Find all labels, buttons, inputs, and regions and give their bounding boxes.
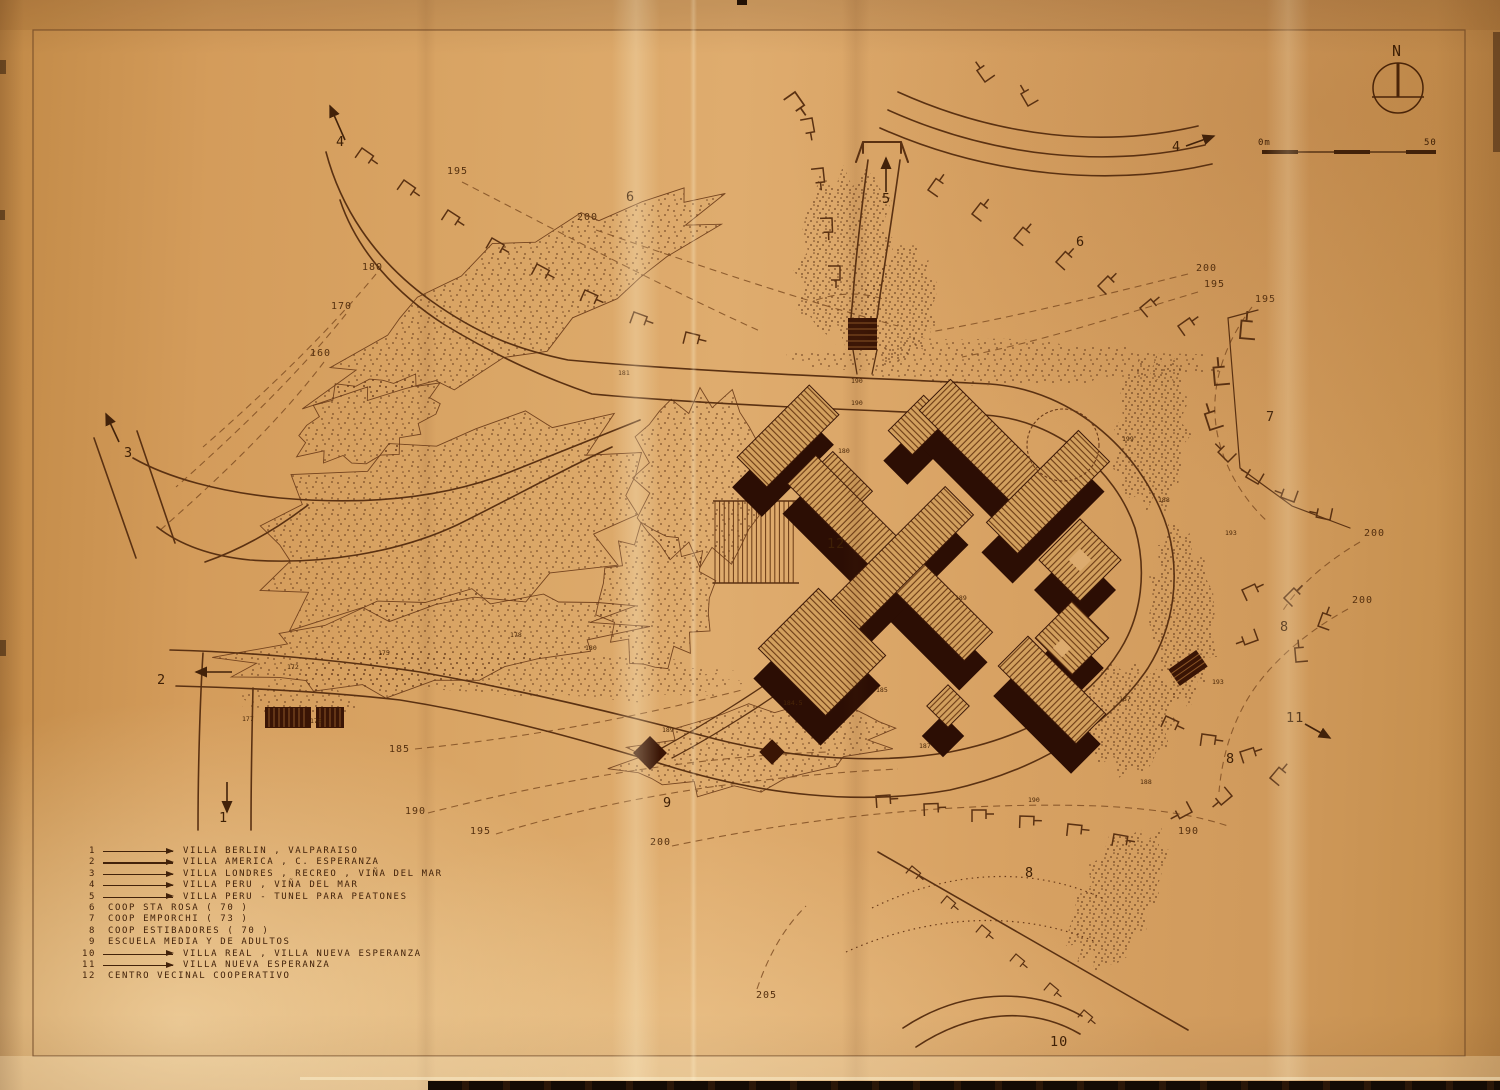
house-footprint	[976, 925, 996, 944]
spot-elevation-label: 177	[242, 715, 254, 723]
legend-item: 12CENTRO VECINAL COOPERATIVO	[70, 971, 443, 982]
legend-item: 5VILLA PERU - TUNEL PARA PEATONES	[70, 892, 443, 903]
vegetation-patch	[302, 188, 725, 409]
spot-elevation-label: 178	[310, 717, 322, 725]
contour-label: 170	[331, 301, 352, 312]
spot-elevation-label: 175	[378, 649, 390, 657]
house-footprint	[1240, 311, 1257, 340]
legend-item: 6COOP STA ROSA ( 70 )	[70, 903, 443, 914]
legend-item: 9ESCUELA MEDIA Y DE ADULTOS	[70, 937, 443, 948]
contour-label: 190	[1178, 826, 1199, 837]
legend-item-label: VILLA NUEVA ESPERANZA	[183, 960, 330, 971]
legend-item-label: COOP EMPORCHI ( 73 )	[108, 914, 248, 925]
map-area-label: 5	[882, 191, 891, 207]
scale-bar: 0m 50	[1258, 138, 1437, 154]
map-area-label: 4	[336, 134, 345, 150]
legend-item-number: 11	[70, 960, 96, 971]
map-area-label: 11	[1286, 710, 1304, 726]
legend-item-number: 7	[70, 914, 96, 925]
spot-elevation-label: 184.5	[783, 699, 803, 707]
contour-label: 195	[470, 826, 491, 837]
contour-label: 200	[1352, 595, 1373, 606]
house-footprint	[1167, 801, 1192, 822]
tunnel-stair	[848, 318, 877, 350]
house-footprint	[1020, 816, 1042, 829]
spot-elevation-label: 180	[585, 644, 597, 652]
house-footprint	[928, 172, 950, 197]
house-footprint	[1200, 734, 1223, 749]
house-footprint	[1078, 1010, 1098, 1029]
house-footprint	[1207, 787, 1232, 810]
house-footprint	[441, 210, 466, 232]
legend-item-label: COOP STA ROSA ( 70 )	[108, 903, 248, 914]
map-area-label: 1	[219, 810, 228, 826]
contour-label: 200	[1196, 263, 1217, 274]
scale-start-label: 0m	[1258, 138, 1271, 148]
legend: 1VILLA BERLIN , VALPARAISO2VILLA AMERICA…	[70, 846, 443, 983]
legend-item-number: 6	[70, 903, 96, 914]
contour-label: 200	[1364, 528, 1385, 539]
house-footprint	[1178, 313, 1203, 335]
legend-arrow-icon	[103, 897, 173, 898]
legend-item: 3VILLA LONDRES , RECREO , VIÑA DEL MAR	[70, 869, 443, 880]
photo-edge-artifact	[1493, 32, 1500, 152]
legend-arrow-icon	[103, 851, 173, 852]
house-footprint	[1294, 639, 1308, 662]
house-footprint	[1067, 824, 1090, 838]
map-area-label: 4	[1172, 139, 1181, 155]
legend-item-label: VILLA AMERICA , C. ESPERANZA	[183, 857, 380, 868]
photo-edge-artifact	[0, 60, 6, 74]
contour-label: 195	[1204, 279, 1225, 290]
spot-elevation-label: 180	[838, 447, 850, 455]
spot-elevation-label: 193	[1212, 678, 1224, 686]
spot-elevation-label: 172	[287, 663, 299, 671]
spot-elevation-label: 190	[1028, 796, 1040, 804]
spot-elevation-label: 199	[1122, 435, 1134, 443]
legend-arrow-icon	[103, 862, 173, 863]
house-footprint	[355, 148, 380, 170]
north-compass: N	[1372, 42, 1424, 113]
legend-item: 1VILLA BERLIN , VALPARAISO	[70, 846, 443, 857]
map-area-label: 3	[124, 445, 133, 461]
map-area-label: 6	[626, 189, 635, 205]
photo-edge-artifact	[0, 210, 5, 220]
house-footprint	[683, 332, 707, 349]
map-area-label: 6	[1076, 234, 1085, 250]
legend-item: 10VILLA REAL , VILLA NUEVA ESPERANZA	[70, 949, 443, 960]
legend-item: 4VILLA PERU , VIÑA DEL MAR	[70, 880, 443, 891]
contour-label: 200	[650, 837, 671, 848]
house-footprint	[1270, 761, 1293, 786]
house-footprint	[784, 92, 810, 121]
legend-item-number: 8	[70, 926, 96, 937]
legend-arrow-icon	[103, 954, 173, 955]
spot-elevation-label: 193	[1225, 529, 1237, 537]
house-footprint	[941, 896, 961, 915]
spot-elevation-label: 187	[919, 742, 931, 750]
house-footprint	[972, 57, 994, 82]
house-footprint	[1212, 438, 1236, 462]
spot-elevation-label: 185	[876, 686, 888, 694]
house-footprint	[800, 118, 816, 142]
spot-elevation-label: 188	[1158, 496, 1170, 504]
contour-label: 180	[362, 262, 383, 273]
legend-item-label: VILLA LONDRES , RECREO , VIÑA DEL MAR	[183, 869, 443, 880]
legend-item-label: VILLA PERU - TUNEL PARA PEATONES	[183, 892, 408, 903]
contour-label: 160	[310, 348, 331, 359]
legend-item-number: 12	[70, 971, 96, 982]
spot-elevation-label: 187	[1119, 695, 1131, 703]
house-footprint	[1240, 745, 1265, 763]
legend-item: 8COOP ESTIBADORES ( 70 )	[70, 926, 443, 937]
legend-item-number: 4	[70, 880, 96, 891]
photo-edge-artifact	[0, 640, 6, 656]
house-footprint	[1308, 504, 1332, 520]
photo-edge-highlight	[300, 1077, 1500, 1080]
map-area-label: 8	[1025, 865, 1034, 881]
house-footprint	[972, 810, 994, 822]
house-footprint	[1017, 81, 1038, 106]
spot-elevation-label: 189	[955, 594, 967, 602]
house-footprint	[1242, 581, 1267, 601]
house-footprint	[630, 312, 655, 331]
house-footprint	[1098, 270, 1122, 294]
house-footprint	[1140, 294, 1165, 317]
legend-item: 2VILLA AMERICA , C. ESPERANZA	[70, 857, 443, 868]
map-area-label: 7	[1266, 409, 1275, 425]
legend-item-label: ESCUELA MEDIA Y DE ADULTOS	[108, 937, 290, 948]
contour-label: 195	[1255, 294, 1276, 305]
map-area-label: 9	[663, 795, 672, 811]
scale-end-label: 50	[1424, 138, 1437, 148]
north-label: N	[1392, 42, 1401, 60]
legend-item-number: 3	[70, 869, 96, 880]
map-area-label: 12	[827, 536, 845, 552]
photo-edge-artifact	[737, 0, 747, 5]
spot-elevation-label: 189	[662, 726, 674, 734]
legend-item-number: 2	[70, 857, 96, 868]
bus-shelter	[265, 707, 344, 728]
house-footprint	[1284, 582, 1308, 606]
house-footprint	[1239, 463, 1264, 484]
building-roof-bar	[927, 685, 969, 727]
house-footprint	[972, 197, 995, 222]
spot-elevation-label: 190	[851, 377, 863, 385]
house-footprint	[1044, 983, 1064, 1002]
house-footprint	[1202, 400, 1224, 430]
contour-label: 205	[756, 990, 777, 1001]
contour-label: 195	[447, 166, 468, 177]
legend-arrow-icon	[103, 965, 173, 966]
spot-elevation-label: 190	[851, 399, 863, 407]
house-footprint	[1273, 483, 1298, 502]
dotted-lines	[846, 876, 1102, 952]
spot-elevation-label: 181	[618, 369, 630, 377]
legend-item-number: 1	[70, 846, 96, 857]
map-area-label: 8	[1280, 619, 1289, 635]
legend-item: 11VILLA NUEVA ESPERANZA	[70, 960, 443, 971]
legend-item-number: 5	[70, 892, 96, 903]
legend-item-number: 10	[70, 949, 96, 960]
legend-item-label: COOP ESTIBADORES ( 70 )	[108, 926, 269, 937]
legend-item-label: VILLA REAL , VILLA NUEVA ESPERANZA	[183, 949, 422, 960]
legend-item-label: VILLA PERU , VIÑA DEL MAR	[183, 880, 358, 891]
spot-elevation-label: 178	[510, 631, 522, 639]
legend-arrow-icon	[103, 885, 173, 886]
house-footprint	[1233, 629, 1258, 648]
house-footprint	[397, 180, 422, 202]
legend-item-number: 9	[70, 937, 96, 948]
site-plan-sheet: N 0m 50 46546781188910123211952001801701…	[0, 0, 1500, 1090]
contour-label: 190	[405, 806, 426, 817]
legend-arrow-icon	[103, 874, 173, 875]
map-area-label: 8	[1226, 751, 1235, 767]
film-strip-edge	[428, 1081, 1500, 1090]
house-footprint	[1014, 221, 1037, 246]
contour-label: 185	[389, 744, 410, 755]
spot-elevation-label: 188	[1140, 778, 1152, 786]
legend-item-label: CENTRO VECINAL COOPERATIVO	[108, 971, 290, 982]
vegetation-patch	[1066, 827, 1171, 973]
house-footprint	[1010, 954, 1030, 973]
map-area-label: 10	[1050, 1034, 1068, 1050]
map-area-label: 2	[157, 672, 166, 688]
legend-item: 7COOP EMPORCHI ( 73 )	[70, 914, 443, 925]
contour-label: 200	[577, 212, 598, 223]
legend-item-label: VILLA BERLIN , VALPARAISO	[183, 846, 358, 857]
